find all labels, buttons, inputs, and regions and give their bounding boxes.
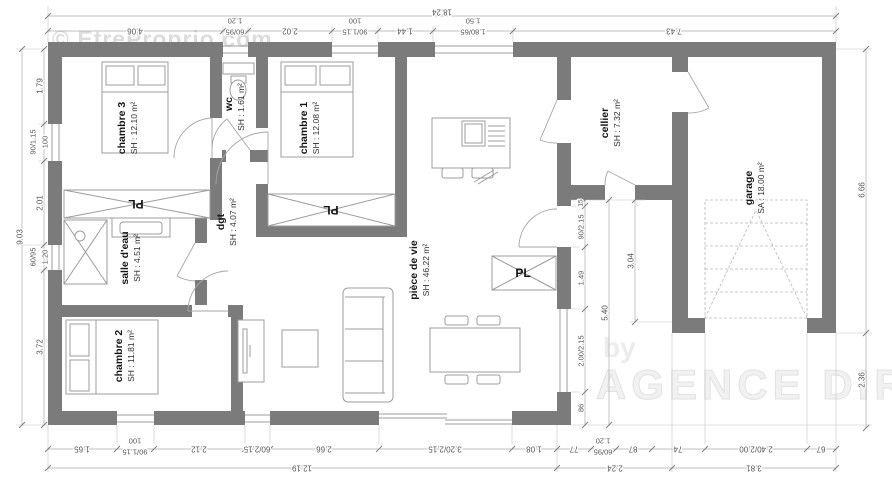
- dim-top: 90/1.15: [342, 28, 367, 37]
- garage-door-pattern: [705, 200, 807, 318]
- dim-bottom: 3.20/2.15: [428, 445, 462, 454]
- dim-left: 60/95: [29, 248, 38, 267]
- dim-left-total: 9.03: [16, 229, 25, 245]
- closet-label-couloir: PL: [128, 197, 143, 211]
- window-cuisine: [435, 46, 513, 53]
- room-area-garage: SA : 18.00 m²: [756, 162, 766, 214]
- dim-top: 4.06: [127, 27, 143, 36]
- watermark-by: by: [603, 332, 636, 363]
- dim-top: 60/95: [226, 28, 245, 37]
- dim-bottom: 1.65: [74, 445, 90, 454]
- bay-window-sliding: [379, 414, 512, 424]
- dim-left: 2.01: [36, 195, 45, 211]
- room-area-wc: SH : 1.61 m²: [236, 83, 246, 131]
- room-label-piece-de-vie: pièce de vie: [408, 240, 420, 300]
- tv-unit: [238, 320, 264, 382]
- dim-bottom-total: 2.24: [607, 464, 623, 473]
- sofa: [343, 288, 393, 402]
- window-chambre3-left: [52, 124, 59, 161]
- dim-left: 3.72: [36, 339, 45, 355]
- dim-interior: 1.49: [577, 271, 586, 286]
- window-sejour-60: [245, 415, 270, 422]
- room-label-dgt: dgt: [215, 213, 227, 230]
- dim-top: 7.43: [666, 27, 682, 36]
- doors: [174, 72, 709, 311]
- dim-top: 1.50: [466, 17, 481, 26]
- dim-top: 1.80/65: [460, 28, 485, 37]
- closet-label-entree: PL: [515, 266, 530, 280]
- dim-left: 90/1.15: [29, 129, 38, 154]
- dim-left: 1.79: [36, 78, 45, 94]
- dim-bottom: 100: [129, 437, 142, 446]
- dim-right: 2.36: [858, 372, 867, 388]
- room-area-piece-de-vie: SH : 46.22 m²: [421, 244, 431, 297]
- bed-chambre2: [66, 320, 158, 394]
- room-label-salle-deau: salle d'eau: [119, 231, 131, 284]
- dim-right: 6.66: [858, 182, 867, 198]
- room-area-salle-deau: SH : 4.51 m²: [132, 234, 142, 282]
- dim-bottom-total: 12.19: [291, 464, 312, 473]
- closet-label-chambre1: PL: [323, 203, 338, 217]
- dim-bottom: 2.66: [316, 445, 332, 454]
- dim-bottom-total: 3.81: [746, 464, 762, 473]
- dim-interior: 90/2.15: [577, 214, 586, 239]
- dim-left: 100: [41, 136, 50, 149]
- dim-left: 1.20: [41, 250, 50, 265]
- dim-top: 2.02: [282, 27, 298, 36]
- door-chambre2: [188, 271, 228, 311]
- door-salle-deau: [177, 243, 195, 281]
- room-area-chambre2: SH : 11.81 m²: [126, 330, 136, 382]
- window-salle-deau-left: [52, 245, 59, 270]
- dim-bottom: 2.40/2.00: [739, 445, 773, 454]
- room-label-wc: wc: [223, 97, 235, 112]
- room-area-chambre3: SH : 12.10 m²: [129, 102, 139, 155]
- door-cellier: [540, 100, 557, 143]
- floor-plan-page: © EtreProprio.com by AGENCE DIRECTE: [0, 0, 892, 482]
- dim-bottom: 90/1.15: [122, 448, 147, 457]
- window-chambre1: [332, 46, 378, 53]
- watermark-agency: AGENCE DIRECTE: [596, 361, 892, 408]
- dim-interior: 5.40: [601, 305, 610, 321]
- room-area-chambre1: SH : 12.08 m²: [311, 102, 321, 155]
- door-cellier-garage: [688, 72, 709, 113]
- dim-interior: 2.00/2.15: [577, 335, 586, 366]
- dim-interior: 15: [578, 199, 585, 207]
- shower: [64, 220, 107, 284]
- room-label-cellier: cellier: [599, 108, 611, 138]
- room-label-garage: garage: [743, 171, 755, 206]
- dim-bottom: 67: [816, 445, 825, 454]
- dim-interior: 86: [577, 404, 586, 412]
- dim-top: 1.20: [228, 17, 243, 26]
- dining-table: [430, 316, 520, 384]
- door-entree: [519, 209, 557, 247]
- dim-bottom: 60/2.15: [243, 445, 270, 454]
- dim-bottom: 1.08: [526, 445, 542, 454]
- dim-top: 1.44: [397, 27, 413, 36]
- dim-bottom: 60/95: [594, 448, 613, 457]
- room-area-dgt: SH : 4.07 m²: [228, 198, 238, 246]
- door-chambre3: [174, 118, 212, 158]
- room-label-chambre1: chambre 1: [298, 102, 310, 155]
- window-chambre2-bottom: [117, 415, 154, 422]
- dim-bottom: 87: [628, 445, 637, 454]
- dim-bottom: 74: [673, 445, 682, 454]
- dim-interior: 3.04: [627, 253, 636, 269]
- dim-top-total: 18.24: [431, 8, 452, 17]
- dim-bottom: 1.20: [596, 437, 611, 446]
- window-sejour-right: [560, 309, 567, 392]
- coffee-table: [282, 330, 318, 367]
- door-cellier-exterieur: [605, 171, 635, 185]
- room-area-cellier: SH : 7.32 m²: [612, 99, 622, 147]
- kitchen-island: [432, 118, 510, 184]
- dim-bottom: 2.12: [191, 445, 207, 454]
- room-label-chambre3: chambre 3: [116, 102, 128, 155]
- floor-plan-svg: © EtreProprio.com by AGENCE DIRECTE: [0, 0, 892, 482]
- dim-top: 100: [349, 17, 362, 26]
- room-label-chambre2: chambre 2: [113, 330, 125, 383]
- dim-bottom: 77: [569, 445, 578, 454]
